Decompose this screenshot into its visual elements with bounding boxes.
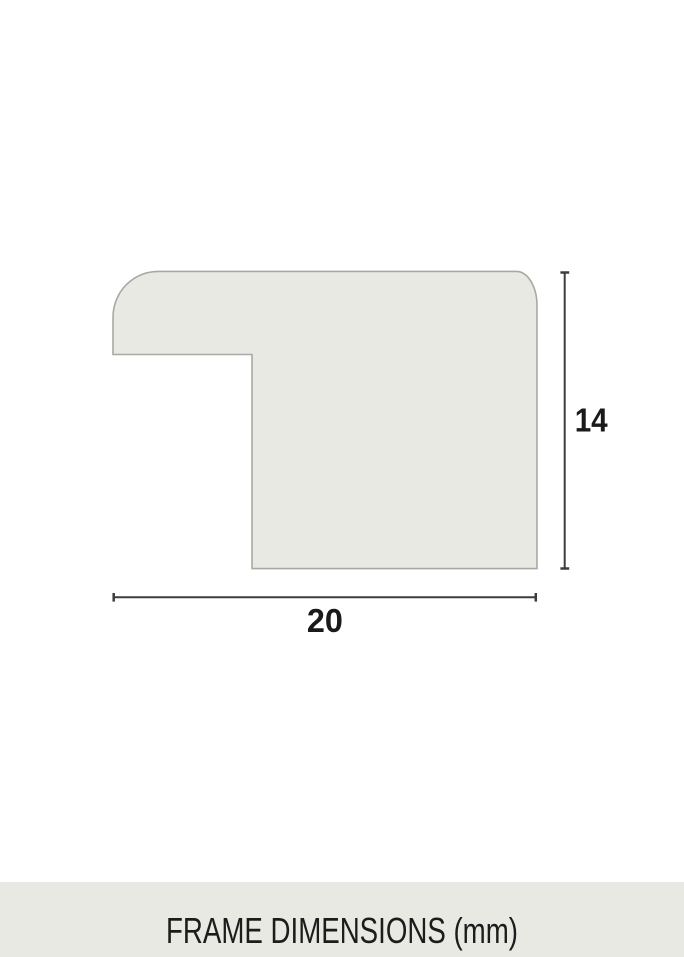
svg-text:FRAME DIMENSIONS (mm): FRAME DIMENSIONS (mm) [166,910,518,951]
svg-text:20: 20 [307,602,343,639]
svg-text:14: 14 [575,402,609,439]
